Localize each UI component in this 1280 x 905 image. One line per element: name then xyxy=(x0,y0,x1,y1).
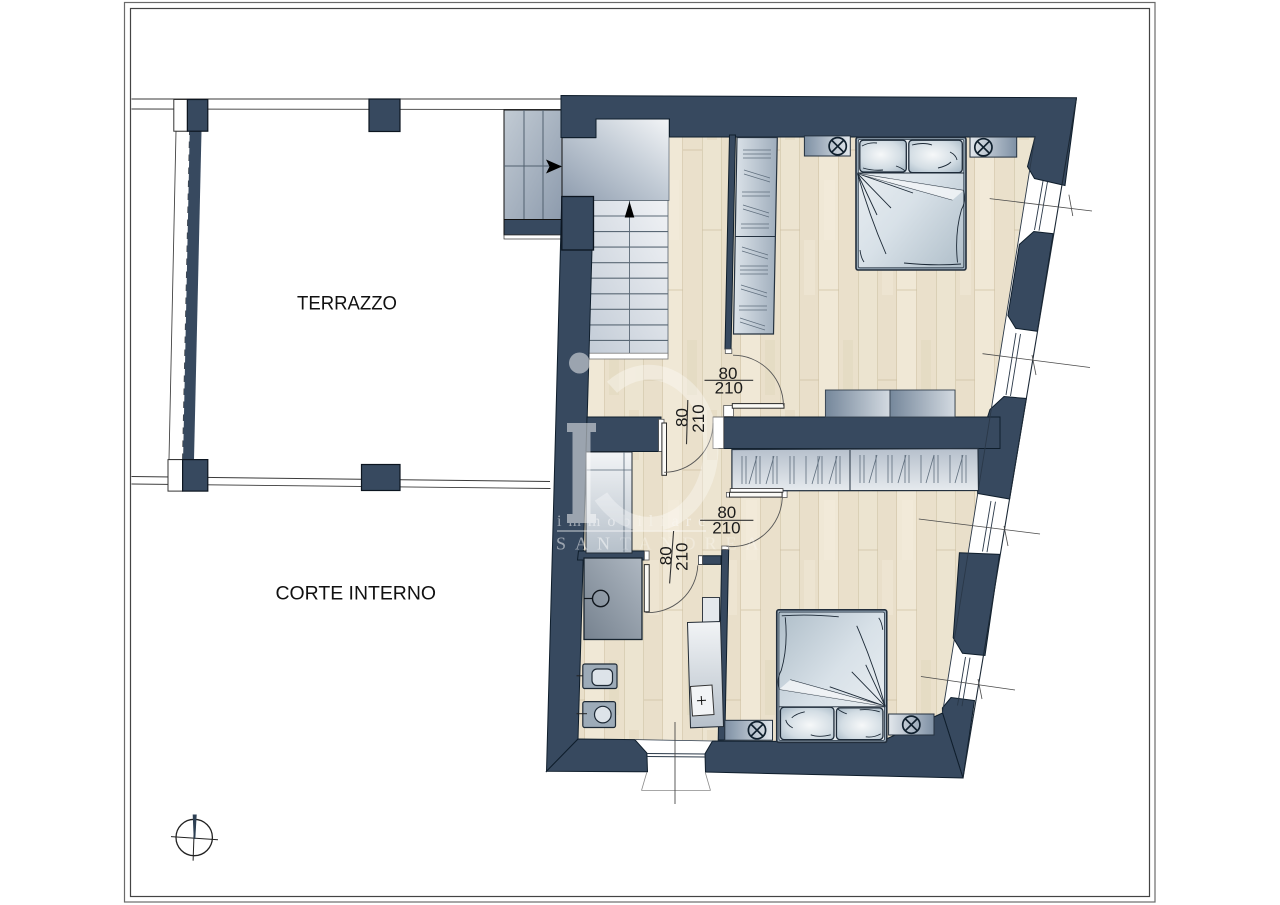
svg-text:SAN: SAN xyxy=(556,534,619,554)
svg-text:TERRAZZO: TERRAZZO xyxy=(297,293,397,315)
svg-text:CORTE INTERNO: CORTE INTERNO xyxy=(276,583,437,605)
svg-text:210: 210 xyxy=(715,379,743,398)
svg-text:210: 210 xyxy=(673,543,692,571)
svg-text:immobiliare: immobiliare xyxy=(557,513,712,530)
svg-text:210: 210 xyxy=(689,404,708,432)
svg-text:TANDREA: TANDREA xyxy=(620,534,768,554)
svg-text:210: 210 xyxy=(712,518,740,537)
